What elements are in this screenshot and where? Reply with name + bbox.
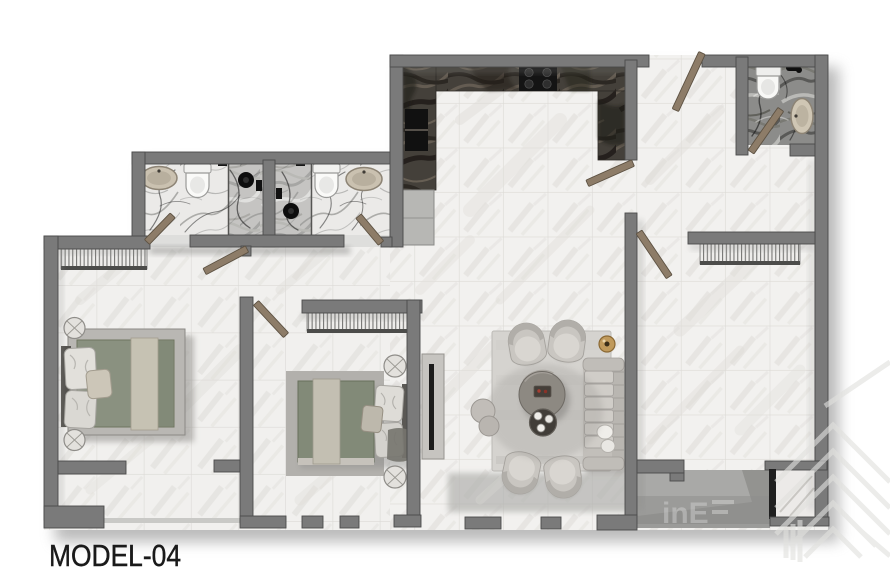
svg-text:inE: inE — [662, 497, 709, 530]
svg-text:MODEL-04: MODEL-04 — [49, 539, 181, 573]
